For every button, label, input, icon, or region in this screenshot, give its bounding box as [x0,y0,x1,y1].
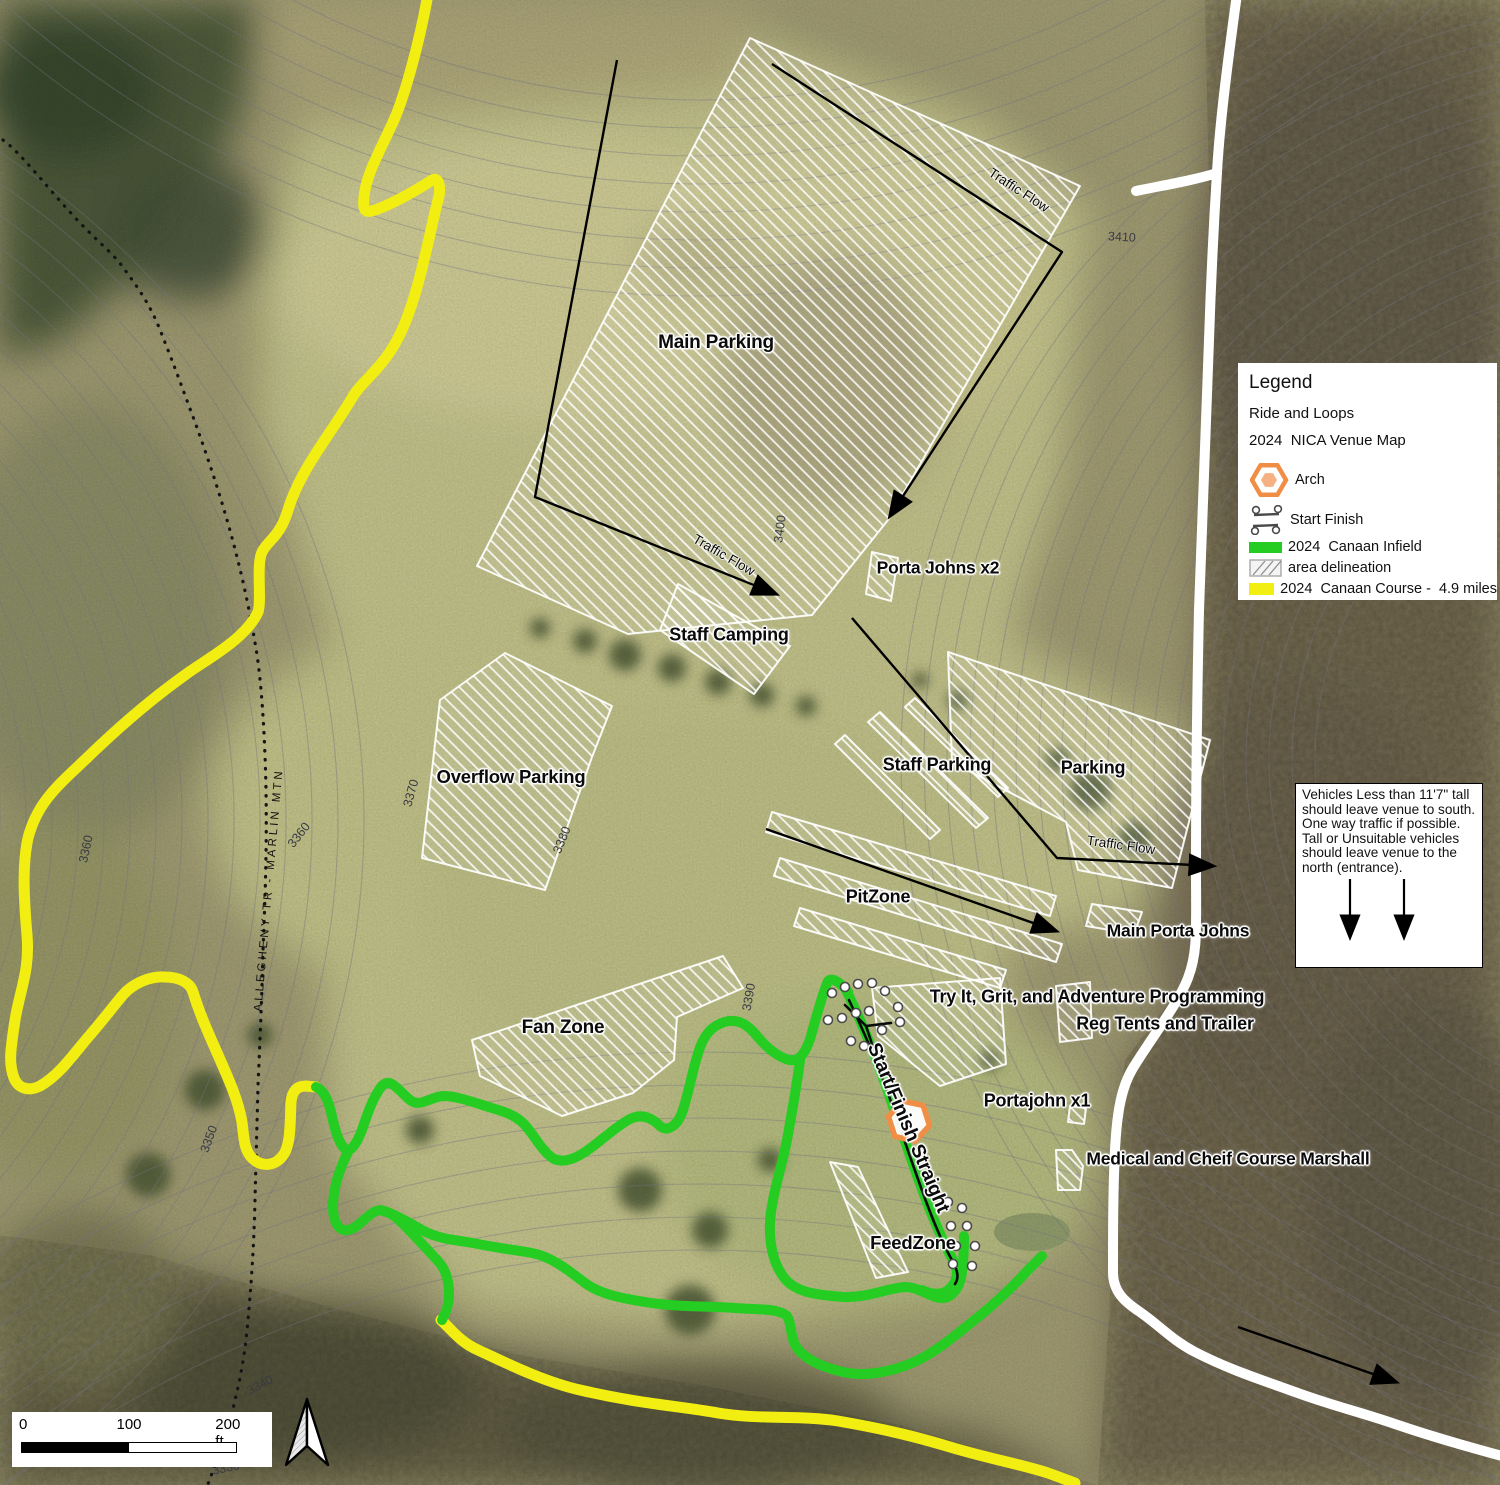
label-try-it: Try It, Grit, and Adventure Programming [930,987,1265,1008]
contour-label: 3410 [1108,229,1137,244]
vehicle-note-box: Vehicles Less than 11'7" tall should lea… [1295,783,1483,968]
label-fan-zone: Fan Zone [522,1017,605,1039]
legend-item-label: Start Finish [1290,512,1363,528]
scale-bar: 0 100 200 ft [12,1412,272,1467]
legend-subtitle-venue-map: 2024 NICA Venue Map [1249,432,1497,449]
label-main-porta-johns: Main Porta Johns [1107,921,1250,942]
vehicle-note-text: Vehicles Less than 11'7" tall should lea… [1302,788,1478,875]
scale-tick-100: 100 [116,1416,141,1433]
legend-subtitle-ride-and-loops: Ride and Loops [1249,405,1497,422]
label-medical: Medical and Cheif Course Marshall [1086,1149,1369,1170]
exit-direction-arrows [1302,875,1478,961]
legend-item-area-delineation: area delineation [1249,559,1497,577]
label-staff-camping: Staff Camping [669,625,788,646]
label-main-parking: Main Parking [658,332,774,354]
area-delineation-swatch [1249,559,1282,577]
legend-item-infield: 2024 Canaan Infield [1249,539,1497,555]
label-portajohn-x1: Portajohn x1 [984,1091,1091,1112]
label-feedzone: FeedZone [870,1232,956,1254]
legend-item-label: 2024 Canaan Course - 4.9 miles [1280,581,1497,597]
arch-icon [1249,459,1289,501]
scale-tick-0: 0 [19,1416,27,1433]
scale-bar-graphic [21,1442,237,1453]
start-finish-icon [1249,505,1284,535]
legend-item-label: area delineation [1288,560,1391,576]
satellite-map-canvas [0,0,1500,1485]
legend-item-label: 2024 Canaan Infield [1288,539,1422,555]
label-reg-tents: Reg Tents and Trailer [1076,1014,1254,1035]
label-overflow-parking: Overflow Parking [437,766,586,788]
legend-item-course: 2024 Canaan Course - 4.9 miles [1249,581,1497,597]
north-arrow-icon [281,1396,333,1470]
legend-panel: Legend Ride and Loops 2024 NICA Venue Ma… [1238,363,1497,600]
legend-item-start-finish: Start Finish [1249,505,1497,535]
infield-swatch [1249,542,1282,553]
course-swatch [1249,583,1274,595]
label-pitzone: PitZone [846,887,911,908]
label-parking: Parking [1061,758,1126,779]
label-porta-johns-x2: Porta Johns x2 [877,558,1000,579]
legend-item-label: Arch [1295,472,1325,488]
label-staff-parking: Staff Parking [883,755,991,776]
legend-title: Legend [1249,372,1497,394]
venue-map: Main Parking Porta Johns x2 Staff Campin… [0,0,1500,1485]
legend-item-arch: Arch [1249,459,1497,501]
